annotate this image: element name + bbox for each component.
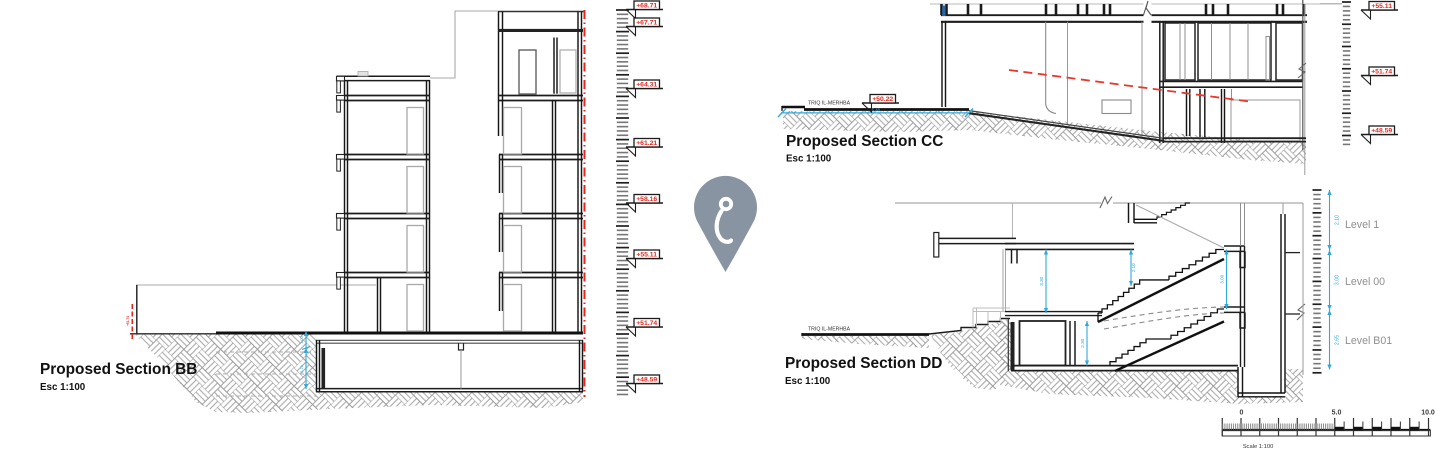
svg-text:5.0: 5.0: [1332, 410, 1342, 417]
svg-text:2.10: 2.10: [300, 365, 304, 372]
svg-text:Esc 1:100: Esc 1:100: [786, 154, 832, 165]
svg-text:1.00: 1.00: [300, 336, 304, 343]
svg-text:2.10: 2.10: [1131, 263, 1136, 272]
svg-text:Scale 1:100: Scale 1:100: [1243, 444, 1274, 450]
svg-text:2.10: 2.10: [1335, 215, 1341, 225]
svg-text:3.00: 3.00: [1335, 275, 1341, 285]
svg-text:Proposed Section CC: Proposed Section CC: [786, 133, 943, 150]
svg-text:3.30: 3.30: [1039, 276, 1044, 285]
svg-text:+55.11: +55.11: [636, 252, 657, 259]
svg-text:2.30: 2.30: [1080, 338, 1085, 347]
svg-text:+48.59: +48.59: [636, 377, 657, 384]
svg-text:+61.21: +61.21: [636, 140, 657, 147]
svg-text:+51.74: +51.74: [126, 316, 130, 326]
svg-text:Esc 1:100: Esc 1:100: [785, 376, 831, 387]
svg-text:Proposed Section BB: Proposed Section BB: [40, 361, 197, 378]
svg-text:TRIQ IL-MERHBA: TRIQ IL-MERHBA: [808, 327, 851, 333]
svg-text:+58.16: +58.16: [636, 196, 657, 203]
svg-text:+51.74: +51.74: [636, 320, 657, 327]
svg-text:Proposed Section DD: Proposed Section DD: [785, 355, 942, 372]
svg-text:10.0: 10.0: [1421, 410, 1435, 417]
svg-text:3.00: 3.00: [1220, 274, 1225, 283]
svg-text:Level 1: Level 1: [1345, 219, 1379, 231]
svg-text:+50.22: +50.22: [872, 96, 893, 103]
svg-text:Level B01: Level B01: [1345, 335, 1392, 347]
svg-text:+64.31: +64.31: [636, 82, 657, 89]
svg-text:0: 0: [1240, 410, 1244, 417]
svg-text:+68.71: +68.71: [636, 3, 657, 10]
svg-text:+67.71: +67.71: [636, 20, 657, 27]
svg-text:+55.11: +55.11: [1371, 3, 1392, 10]
svg-text:5.40: 5.40: [872, 108, 881, 113]
svg-text:2.65: 2.65: [1335, 335, 1341, 345]
svg-text:+48.59: +48.59: [1371, 128, 1392, 135]
svg-text:Esc 1:100: Esc 1:100: [40, 382, 86, 393]
svg-text:Level 00: Level 00: [1345, 276, 1385, 288]
svg-text:+51.74: +51.74: [1371, 69, 1392, 76]
svg-text:TRIQ IL-MERHBA: TRIQ IL-MERHBA: [808, 100, 851, 106]
